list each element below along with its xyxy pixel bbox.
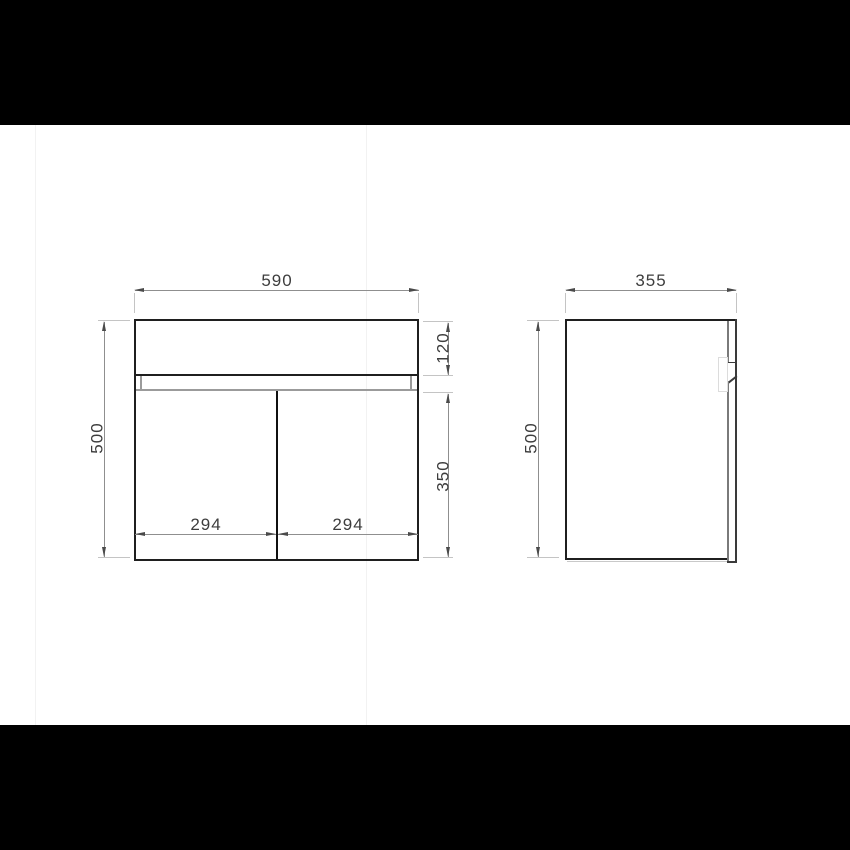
arrow-down-icon [446,547,450,557]
arrow-down-icon [102,547,106,557]
front-handle-recess-tick-right [410,376,412,389]
arrow-left-icon [135,532,145,536]
extension-line [423,557,453,558]
letterbox-bottom [0,725,850,850]
letterbox-top [0,0,850,125]
side-door-inner-line-lower [727,381,729,561]
dim-label-door-height: 350 [435,460,452,491]
extension-line [423,375,453,376]
side-door-inner-line-upper [727,321,729,362]
side-left-line [565,319,567,560]
extension-line [134,293,135,313]
arrow-right-icon [266,532,276,536]
dim-label-front-height: 500 [89,422,106,453]
extension-line [418,293,419,313]
side-door-bottom-cap-line [727,561,737,563]
arrow-up-icon [102,321,106,331]
dim-label-side-height: 500 [523,422,540,453]
arrow-right-icon [727,288,737,292]
technical-drawing-page: 590 500 120 350 [0,0,850,850]
dim-label-top-panel: 120 [435,332,452,363]
dim-line [566,290,736,291]
front-handle-recess-tick-left [140,376,142,389]
artifact-line-left [35,125,36,725]
arrow-up-icon [446,322,450,332]
arrow-left-icon [565,288,575,292]
extension-line [736,293,737,313]
extension-line [98,557,130,558]
extension-line [98,320,130,321]
arrow-down-icon [446,365,450,375]
dim-label-front-width: 590 [261,272,292,289]
dim-label-left-door: 294 [190,516,221,533]
dim-line [135,534,276,535]
side-bottom-line [565,558,728,560]
extension-line [527,557,559,558]
arrow-down-icon [536,547,540,557]
front-top-panel-bottom-line [136,374,417,376]
arrow-left-icon [278,532,288,536]
extension-line [527,320,559,321]
side-handle-recess-outline [718,357,728,392]
arrow-up-icon [446,393,450,403]
arrow-left-icon [134,288,144,292]
extension-line [423,321,453,322]
side-door-notch-cap-line [727,362,737,364]
side-bottom-shadow-line [567,561,736,562]
extension-line [423,392,453,393]
side-door-outer-line [735,319,737,563]
arrow-right-icon [408,532,418,536]
side-top-line [565,319,737,321]
dim-line [135,290,419,291]
extension-line [565,293,566,313]
arrow-up-icon [536,321,540,331]
dim-label-side-depth: 355 [635,272,666,289]
dim-label-right-door: 294 [332,516,363,533]
dim-line [278,534,418,535]
arrow-right-icon [409,288,419,292]
